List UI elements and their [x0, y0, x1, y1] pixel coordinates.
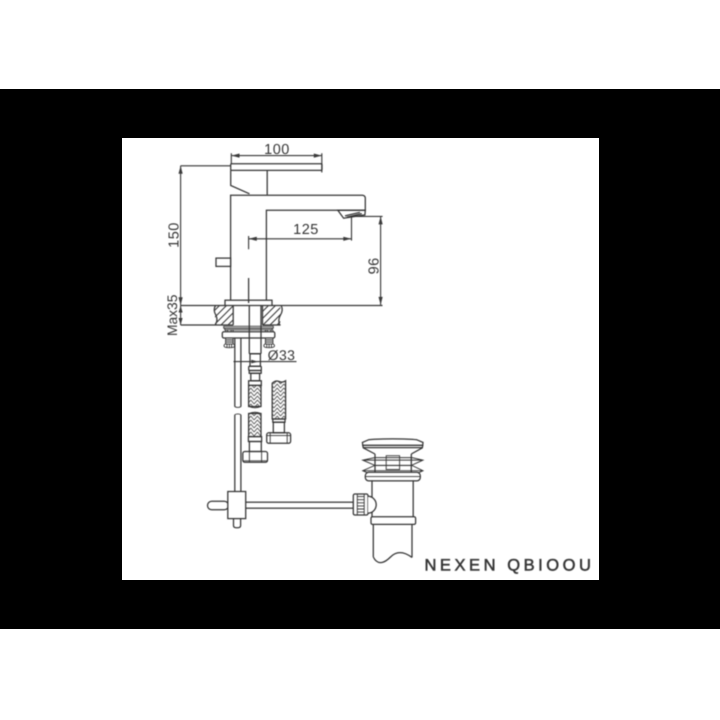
svg-text:100: 100: [264, 142, 290, 158]
svg-text:150: 150: [167, 222, 183, 248]
svg-text:Ø33: Ø33: [268, 347, 296, 363]
svg-text:NEXEN QBIOOU: NEXEN QBIOOU: [424, 557, 594, 575]
svg-text:Max35: Max35: [165, 294, 180, 336]
svg-text:96: 96: [366, 257, 382, 274]
svg-text:125: 125: [293, 222, 319, 238]
